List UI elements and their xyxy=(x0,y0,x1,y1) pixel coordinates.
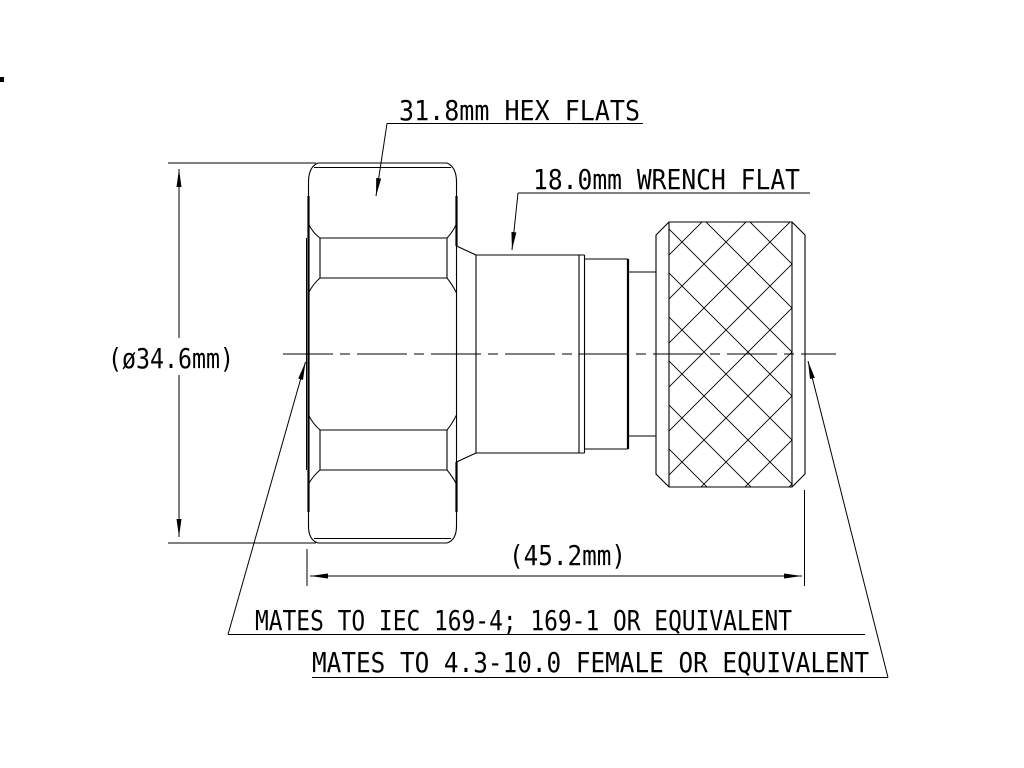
hex-coupling-nut xyxy=(307,163,457,543)
hex-flats-label: 31.8mm HEX FLATS xyxy=(399,94,640,127)
wrench-flat-label: 18.0mm WRENCH FLAT xyxy=(533,163,800,196)
knurl-crosshatch xyxy=(669,222,792,487)
mates-right-text: MATES TO 4.3-10.0 FEMALE OR EQUIVALENT xyxy=(312,646,869,679)
drawing-canvas: (ø34.6mm) (45.2mm) 31.8mm HEX FLATS 18.0… xyxy=(0,0,1024,768)
connector-technical-drawing: (ø34.6mm) (45.2mm) 31.8mm HEX FLATS 18.0… xyxy=(0,0,1024,768)
mates-left-leader-arrow xyxy=(228,362,306,635)
dimension-diameter: (ø34.6mm) xyxy=(108,163,316,543)
edge-artifact-mark xyxy=(0,77,4,82)
diameter-dim-text: (ø34.6mm) xyxy=(108,342,234,375)
knurled-grip xyxy=(656,222,805,487)
hex-flats-leader-arrow xyxy=(376,124,387,197)
wrench-flat-leader-arrow xyxy=(512,193,518,250)
mates-right-leader-arrow xyxy=(808,361,888,678)
length-dim-text: (45.2mm) xyxy=(509,539,626,572)
mates-left-text: MATES TO IEC 169-4; 169-1 OR EQUIVALENT xyxy=(255,604,792,637)
